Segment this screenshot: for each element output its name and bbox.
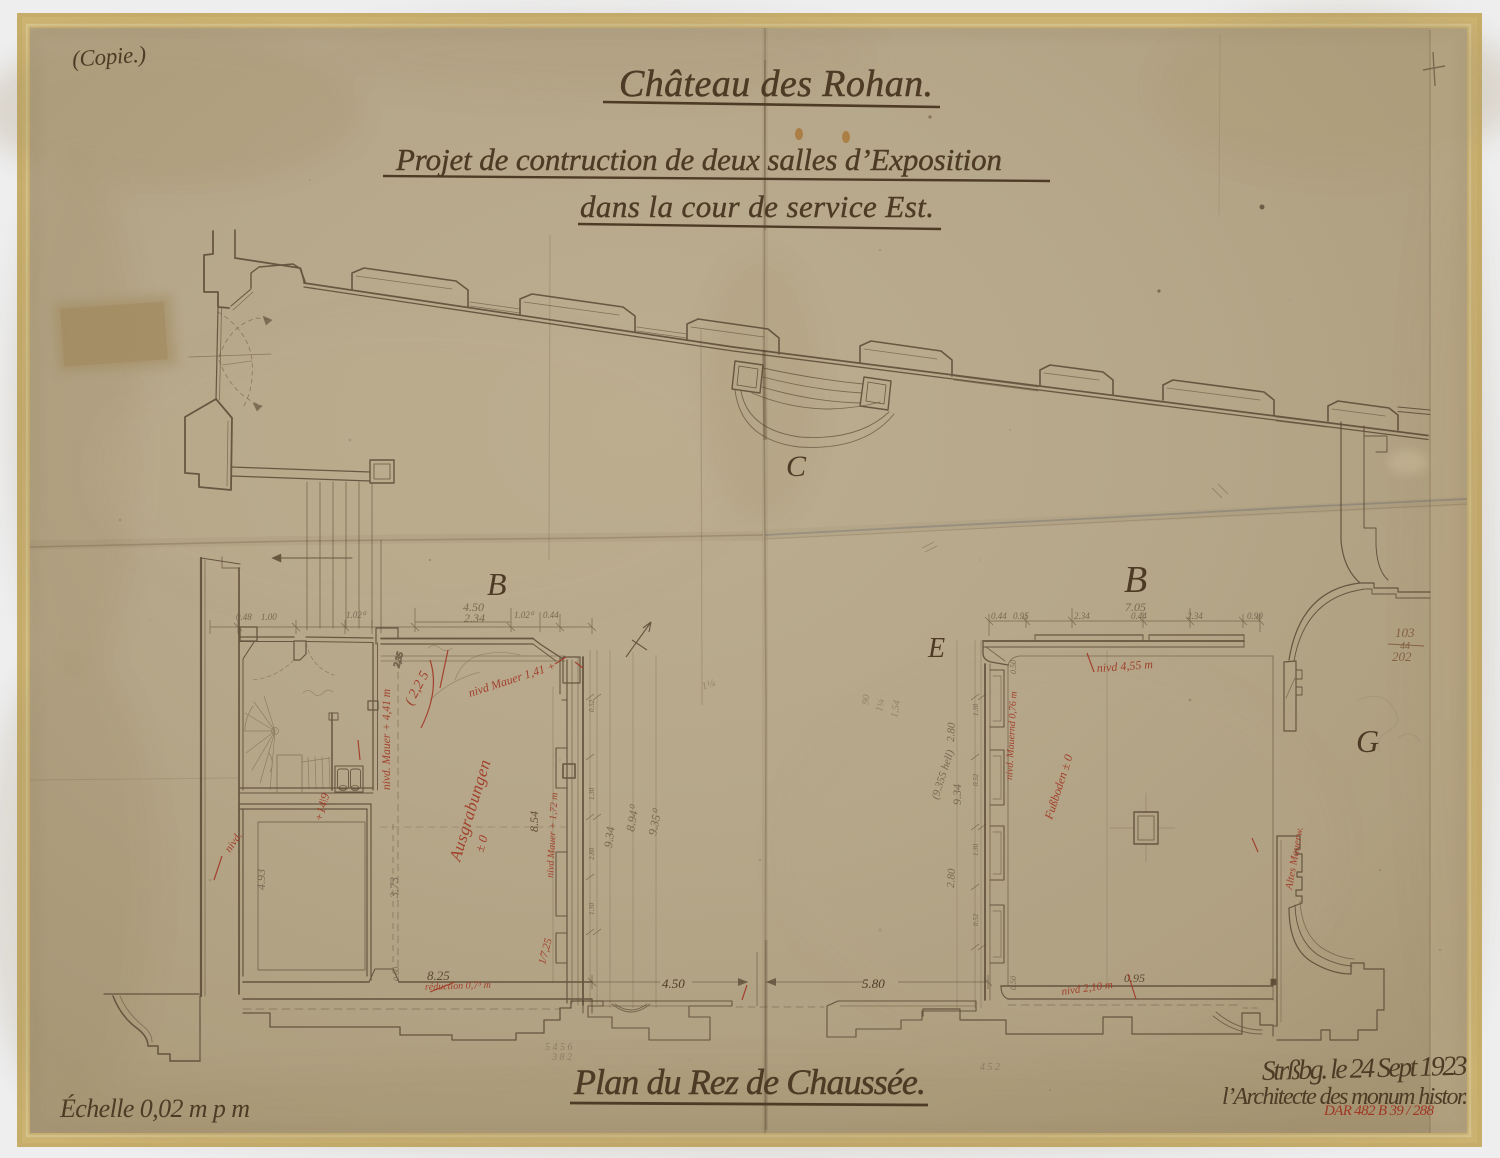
- svg-text:Échelle 0,02 m p m: Échelle 0,02 m p m: [59, 1094, 250, 1123]
- svg-text:C: C: [786, 450, 807, 483]
- svg-text:réduction 0,7³ m: réduction 0,7³ m: [425, 980, 491, 993]
- svg-text:1.30: 1.30: [972, 843, 980, 856]
- svg-text:90: 90: [860, 694, 873, 706]
- svg-text:0.50: 0.50: [1009, 660, 1018, 674]
- svg-text:1.02⁰: 1.02⁰: [514, 610, 535, 620]
- svg-text:nivd. Mauer + 4,41 m: nivd. Mauer + 4,41 m: [381, 689, 393, 790]
- svg-text:2.34: 2.34: [464, 611, 485, 625]
- svg-text:0.52: 0.52: [588, 699, 596, 712]
- svg-text:9.34: 9.34: [950, 784, 964, 805]
- svg-text:1.30: 1.30: [588, 787, 596, 800]
- svg-text:202: 202: [1392, 649, 1412, 664]
- svg-text:8.54: 8.54: [527, 811, 541, 832]
- svg-text:4.93: 4.93: [254, 869, 268, 890]
- svg-text:B: B: [1124, 559, 1147, 601]
- svg-text:2.80: 2.80: [588, 847, 596, 860]
- svg-text:4 5 2: 4 5 2: [980, 1062, 1000, 1073]
- svg-text:DAR 482 B 39 / 288: DAR 482 B 39 / 288: [1323, 1103, 1435, 1119]
- svg-text:2.80: 2.80: [945, 868, 958, 888]
- svg-text:dans la cour de service Est.: dans la cour de service Est.: [580, 189, 934, 224]
- svg-text:9.34: 9.34: [601, 826, 617, 849]
- svg-text:0.90: 0.90: [1247, 611, 1263, 621]
- svg-text:1¼: 1¼: [874, 698, 887, 713]
- svg-text:Plan du Rez de Chaussée.: Plan du Rez de Chaussée.: [573, 1062, 926, 1102]
- svg-text:0.52: 0.52: [972, 773, 980, 786]
- svg-text:1.00: 1.00: [261, 612, 277, 622]
- svg-text:0.44: 0.44: [543, 610, 559, 620]
- svg-text:1.30: 1.30: [972, 703, 980, 716]
- svg-text:103: 103: [1395, 625, 1415, 640]
- svg-text:0.95: 0.95: [1124, 971, 1145, 985]
- svg-text:Projet de contruction de deux: Projet de contruction de deux salles d’E…: [395, 142, 1002, 177]
- svg-text:0.48: 0.48: [236, 612, 252, 622]
- svg-text:0.44: 0.44: [1131, 611, 1147, 621]
- svg-text:4.50: 4.50: [662, 976, 685, 991]
- svg-text:0.44: 0.44: [991, 611, 1007, 621]
- svg-text:B: B: [487, 566, 507, 602]
- svg-text:1.02⁰: 1.02⁰: [346, 610, 367, 620]
- svg-text:2.34: 2.34: [1187, 611, 1203, 621]
- svg-text:3 8 2: 3 8 2: [551, 1052, 572, 1063]
- svg-text:2.80: 2.80: [945, 722, 958, 742]
- svg-text:0.50: 0.50: [1009, 976, 1018, 990]
- svg-text:0.95: 0.95: [1013, 611, 1029, 621]
- svg-text:0.52: 0.52: [972, 913, 980, 926]
- svg-text:Strßbg. le 24 Sept 1923: Strßbg. le 24 Sept 1923: [1261, 1051, 1468, 1087]
- svg-text:2.34: 2.34: [1074, 611, 1090, 621]
- svg-text:5.80: 5.80: [862, 976, 885, 991]
- svg-text:(Copie.): (Copie.): [71, 42, 147, 72]
- svg-text:G: G: [1356, 723, 1379, 759]
- svg-text:Château des Rohan.: Château des Rohan.: [619, 63, 933, 105]
- svg-text:3.73: 3.73: [387, 877, 401, 899]
- svg-text:1.30: 1.30: [588, 902, 596, 915]
- svg-text:E: E: [927, 633, 945, 664]
